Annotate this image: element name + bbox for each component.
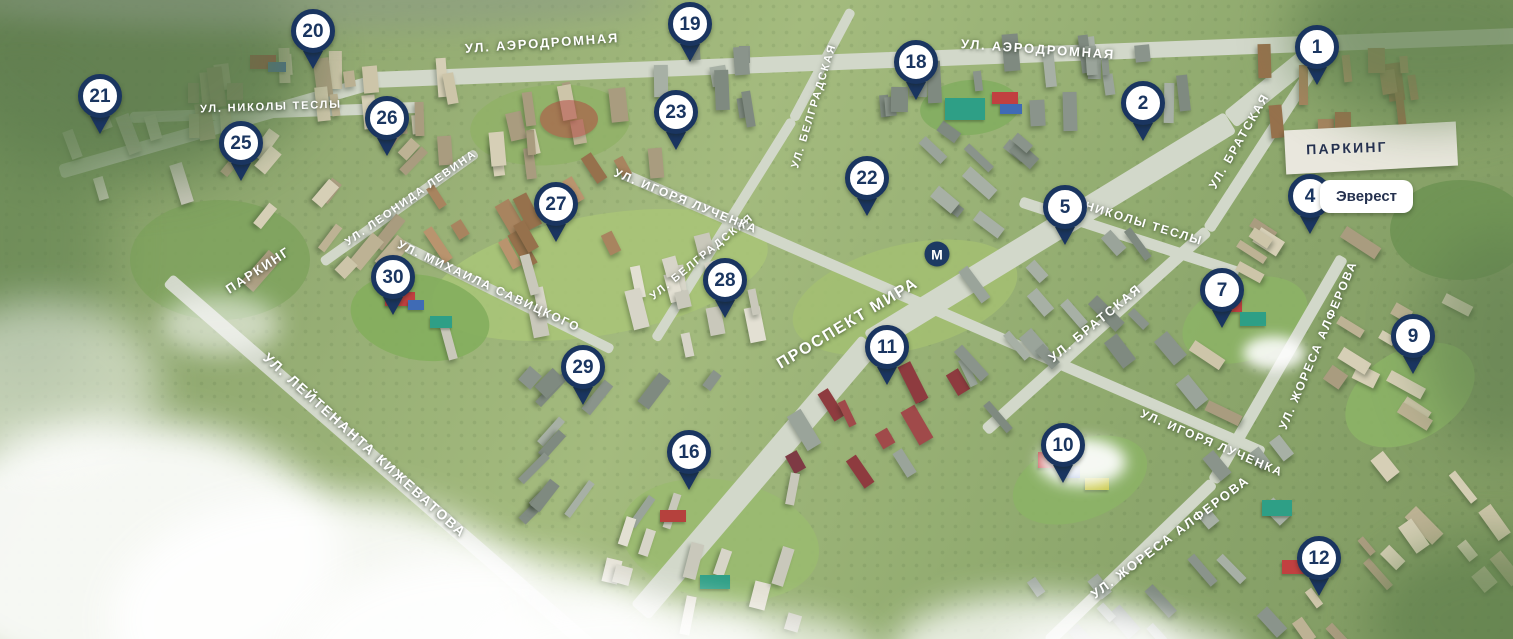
pin-tail xyxy=(1403,356,1423,374)
pin-circle: 30 xyxy=(371,255,415,299)
street-label: УЛ. АЭРОДРОМНАЯ xyxy=(464,30,619,56)
pin-number: 10 xyxy=(1052,436,1073,455)
pin-tail xyxy=(573,387,593,405)
pin-circle: 27 xyxy=(534,182,578,226)
pin-circle: 18 xyxy=(894,40,938,84)
pin-number: 11 xyxy=(877,338,897,357)
street-label: УЛ. НИКОЛЫ ТЕСЛЫ xyxy=(200,99,342,116)
pin-circle: 25 xyxy=(219,121,263,165)
street-label: УЛ. БРАТСКАЯ xyxy=(1206,91,1272,191)
street-label: УЛ. БЕЛГРАДСКАЯ xyxy=(789,42,838,169)
pin-number: 21 xyxy=(89,87,110,106)
pin-tail xyxy=(1053,465,1073,483)
pin-tail xyxy=(906,82,926,100)
street-label: УЛ. БРАТСКАЯ xyxy=(1046,281,1145,365)
street-label: УЛ. АЭРОДРОМНАЯ xyxy=(960,36,1115,62)
pin-circle: 28 xyxy=(703,258,747,302)
pin-circle: 23 xyxy=(654,90,698,134)
pin-number: 1 xyxy=(1312,38,1323,57)
pin-tail xyxy=(666,132,686,150)
pin-number: 29 xyxy=(572,358,593,377)
pin-tail xyxy=(857,198,877,216)
pin-circle: 29 xyxy=(561,345,605,389)
pin-circle: 20 xyxy=(291,9,335,53)
pin-tail xyxy=(1055,227,1075,245)
pin-number: 26 xyxy=(376,109,397,128)
pin-tail xyxy=(1212,310,1232,328)
street-label: УЛ. ЖОРЕСА АЛФЕРОВА xyxy=(1088,473,1252,602)
pin-tail xyxy=(877,367,897,385)
masterplan-map[interactable]: УЛ. АЭРОДРОМНАЯУЛ. АЭРОДРОМНАЯУЛ. НИКОЛЫ… xyxy=(0,0,1513,639)
pin-number: 28 xyxy=(714,271,735,290)
pin-number: 20 xyxy=(302,22,323,41)
pin-circle: 1 xyxy=(1295,25,1339,69)
pin-number: 4 xyxy=(1305,187,1316,206)
pin-circle: 12 xyxy=(1297,536,1341,580)
pin-circle: 2 xyxy=(1121,81,1165,125)
parking-label-dark: ПАРКИНГ xyxy=(1306,139,1388,158)
pin-tail xyxy=(303,51,323,69)
pin-number: 16 xyxy=(678,443,699,462)
pin-tail xyxy=(546,224,566,242)
pin-circle: 5 xyxy=(1043,185,1087,229)
pin-number: 18 xyxy=(905,53,926,72)
street-label: УЛ. ИГОРЯ ЛУЧЕНКА xyxy=(1138,406,1285,479)
pin-number: 27 xyxy=(545,195,566,214)
pin-circle: 9 xyxy=(1391,314,1435,358)
pin-number: 22 xyxy=(856,169,877,188)
street-label: УЛ. ИГОРЯ ЛУЧЕНКА xyxy=(612,166,760,237)
pin-number: 12 xyxy=(1308,549,1329,568)
pin-tail xyxy=(715,300,735,318)
pin-circle: 21 xyxy=(78,74,122,118)
pin-number: 23 xyxy=(665,103,686,122)
pin-number: 5 xyxy=(1060,198,1071,217)
street-label: УЛ. ЛЕОНИДА ЛЕВИНА xyxy=(343,148,479,248)
pin-circle: 11 xyxy=(865,325,909,369)
pin-tail xyxy=(679,472,699,490)
pin-tail xyxy=(90,116,110,134)
pin-tail xyxy=(383,297,403,315)
pin-number: 30 xyxy=(382,268,403,287)
pin-number: 19 xyxy=(679,15,700,34)
pin-tail xyxy=(377,138,397,156)
pin-number: 9 xyxy=(1408,327,1419,346)
pin-tail xyxy=(231,163,251,181)
pin-number: 2 xyxy=(1138,94,1149,113)
street-labels-layer: УЛ. АЭРОДРОМНАЯУЛ. АЭРОДРОМНАЯУЛ. НИКОЛЫ… xyxy=(0,0,1513,639)
pin-tail xyxy=(1307,67,1327,85)
pin-tail xyxy=(1133,123,1153,141)
street-label: УЛ. МИХАИЛА САВИЦКОГО xyxy=(395,237,582,334)
pin-circle: 22 xyxy=(845,156,889,200)
parking-label-white: ПАРКИНГ xyxy=(223,244,293,297)
pin-number: 25 xyxy=(230,134,251,153)
pin-tail xyxy=(1300,216,1320,234)
pin-tail xyxy=(680,44,700,62)
metro-icon: М xyxy=(925,242,950,267)
pin-circle: 7 xyxy=(1200,268,1244,312)
pin-label-button[interactable]: Эверест xyxy=(1320,180,1413,213)
pin-circle: 26 xyxy=(365,96,409,140)
street-label: УЛ. ЖОРЕСА АЛФЕРОВА xyxy=(1276,258,1360,431)
pin-circle: 19 xyxy=(668,2,712,46)
pin-circle: 10 xyxy=(1041,423,1085,467)
pin-tail xyxy=(1309,578,1329,596)
pin-circle: 16 xyxy=(667,430,711,474)
street-label: УЛ. ЛЕЙТЕНАНТА КИЖЕВАТОВА xyxy=(260,349,470,540)
pin-number: 7 xyxy=(1217,281,1228,300)
